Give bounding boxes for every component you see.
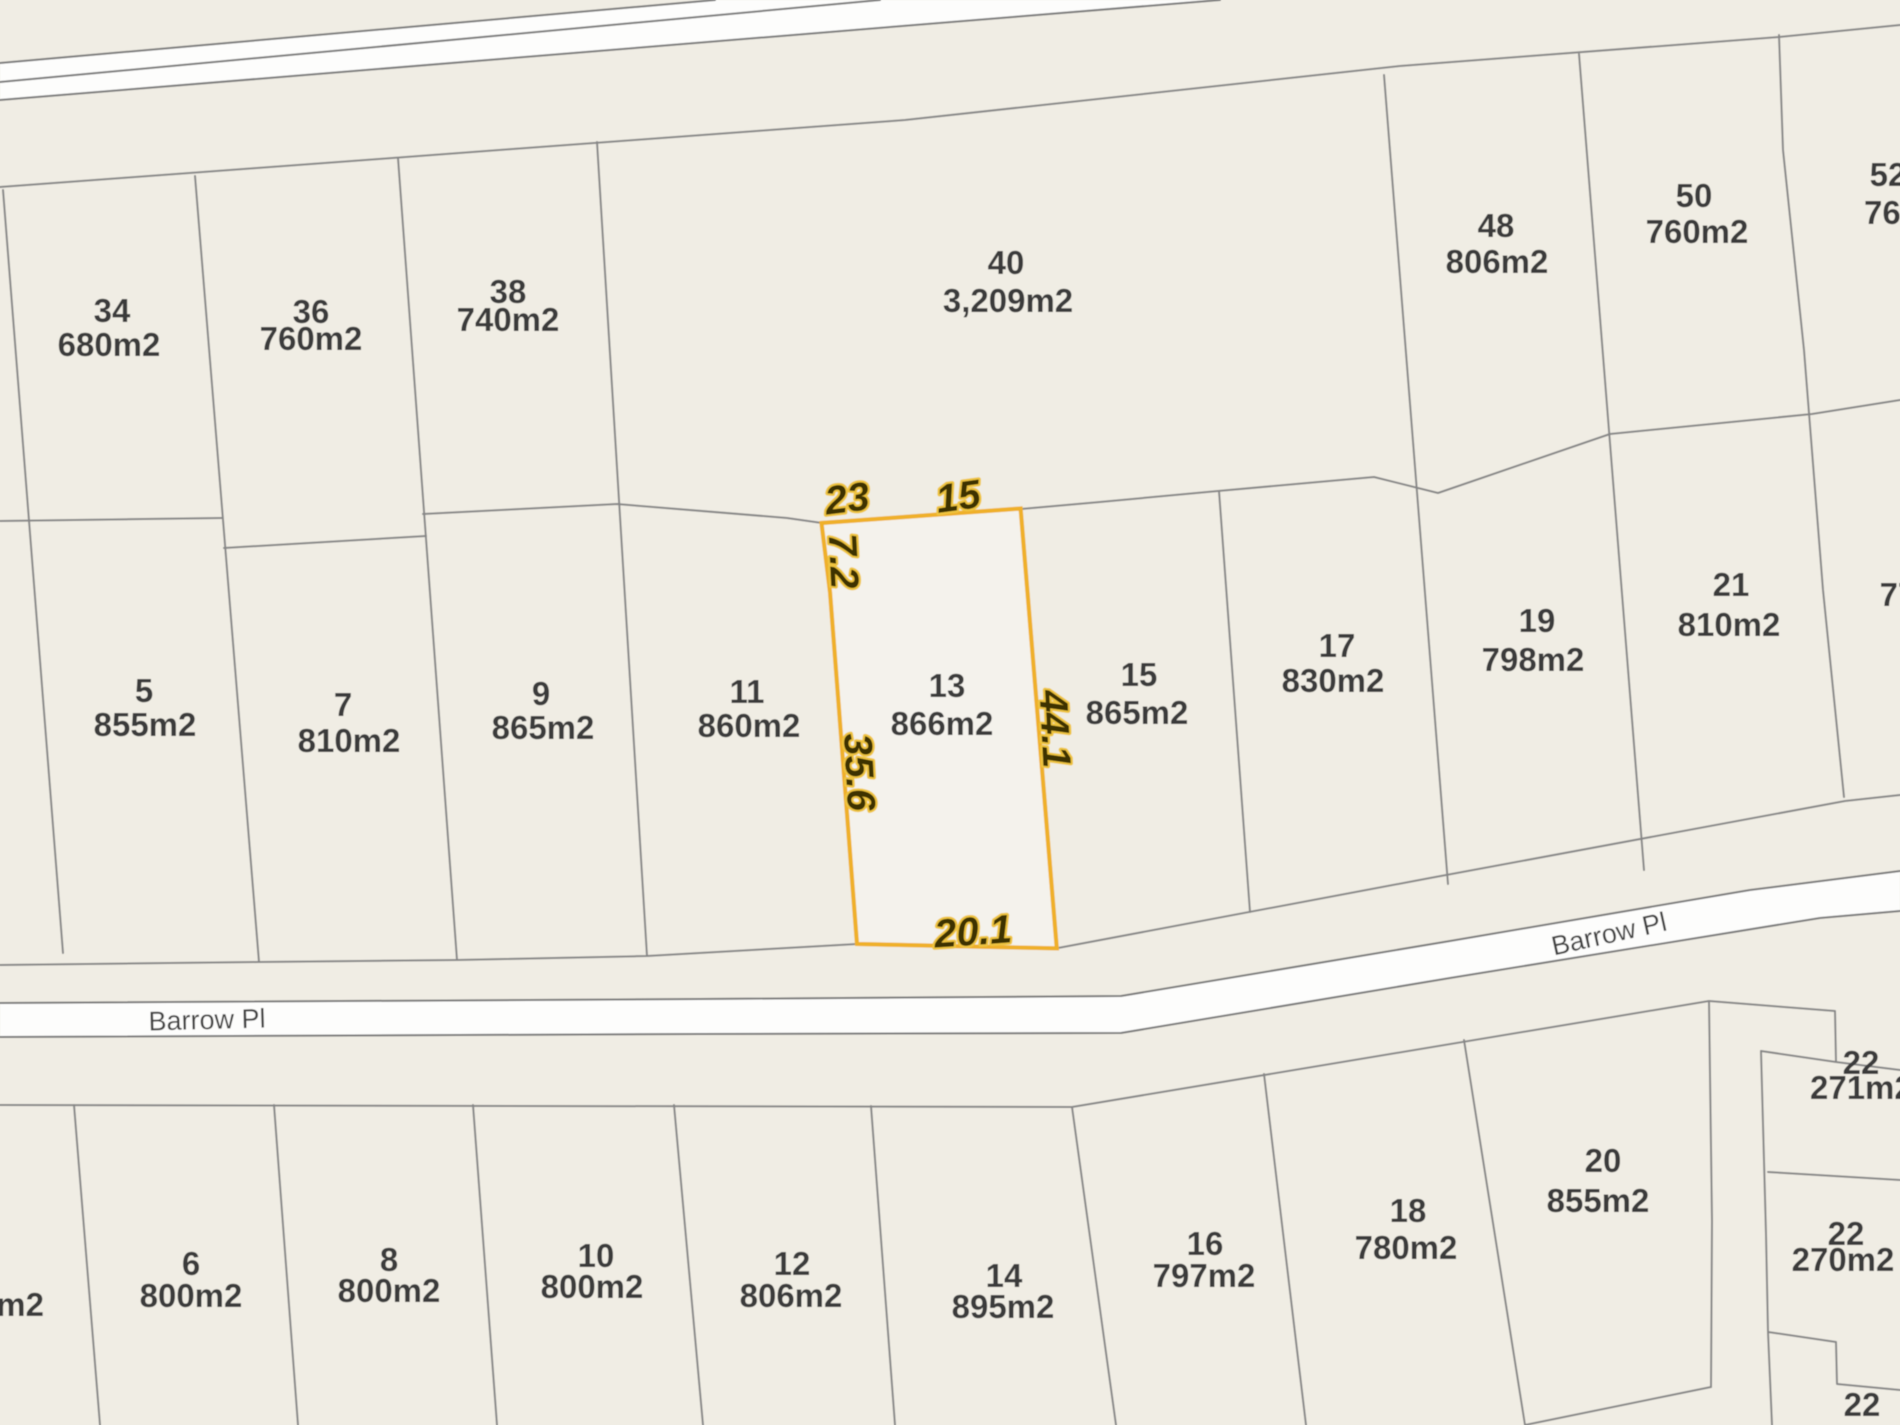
svg-text:20: 20 (1585, 1142, 1622, 1179)
svg-text:271m2: 271m2 (1810, 1069, 1900, 1106)
svg-text:23: 23 (821, 474, 872, 523)
svg-text:18: 18 (1390, 1192, 1427, 1229)
svg-text:895m2: 895m2 (952, 1288, 1055, 1325)
svg-text:760m2: 760m2 (1864, 194, 1900, 231)
svg-text:680m2: 680m2 (58, 326, 161, 363)
svg-text:40: 40 (988, 244, 1025, 281)
svg-text:21: 21 (1713, 566, 1750, 603)
svg-text:800m2: 800m2 (140, 1277, 243, 1314)
svg-text:855m2: 855m2 (1547, 1182, 1650, 1219)
svg-text:11: 11 (730, 673, 765, 710)
svg-text:34: 34 (94, 292, 131, 329)
svg-text:7: 7 (334, 686, 352, 723)
svg-text:865m2: 865m2 (1086, 694, 1189, 731)
svg-text:77: 77 (1880, 576, 1900, 613)
svg-text:740m2: 740m2 (457, 301, 560, 338)
svg-text:48: 48 (1478, 207, 1515, 244)
svg-text:15: 15 (1121, 656, 1158, 693)
svg-text:806m2: 806m2 (740, 1277, 843, 1314)
svg-text:17: 17 (1319, 627, 1356, 664)
svg-text:760m2: 760m2 (1646, 213, 1749, 250)
svg-text:810m2: 810m2 (1678, 606, 1781, 643)
svg-text:810m2: 810m2 (298, 722, 401, 759)
svg-text:7.2: 7.2 (820, 532, 867, 590)
svg-text:860m2: 860m2 (698, 707, 801, 744)
svg-text:800m2: 800m2 (338, 1272, 441, 1309)
svg-text:20.1: 20.1 (932, 907, 1014, 956)
svg-text:760m2: 760m2 (260, 320, 363, 357)
svg-text:Barrow Pl: Barrow Pl (148, 1003, 266, 1036)
svg-text:3,209m2: 3,209m2 (943, 282, 1073, 319)
svg-text:9: 9 (532, 675, 550, 712)
svg-text:52: 52 (1870, 156, 1900, 193)
svg-text:806m2: 806m2 (1446, 243, 1549, 280)
svg-text:865m2: 865m2 (492, 709, 595, 746)
svg-text:855m2: 855m2 (94, 706, 197, 743)
svg-text:830m2: 830m2 (1282, 662, 1385, 699)
svg-text:798m2: 798m2 (1482, 641, 1585, 678)
svg-text:270m2: 270m2 (1792, 1241, 1895, 1278)
svg-text:13: 13 (929, 667, 966, 704)
svg-text:19: 19 (1519, 602, 1556, 639)
svg-text:866m2: 866m2 (891, 705, 994, 742)
svg-text:44.1: 44.1 (1030, 688, 1078, 769)
svg-text:797m2: 797m2 (1153, 1257, 1256, 1294)
svg-text:22: 22 (1844, 1386, 1881, 1423)
svg-text:800m2: 800m2 (541, 1268, 644, 1305)
svg-text:5: 5 (135, 672, 153, 709)
svg-text:800m2: 800m2 (0, 1286, 44, 1323)
svg-text:15: 15 (933, 472, 984, 522)
svg-text:780m2: 780m2 (1355, 1229, 1458, 1266)
svg-text:50: 50 (1676, 177, 1713, 214)
svg-text:35.6: 35.6 (835, 732, 883, 813)
